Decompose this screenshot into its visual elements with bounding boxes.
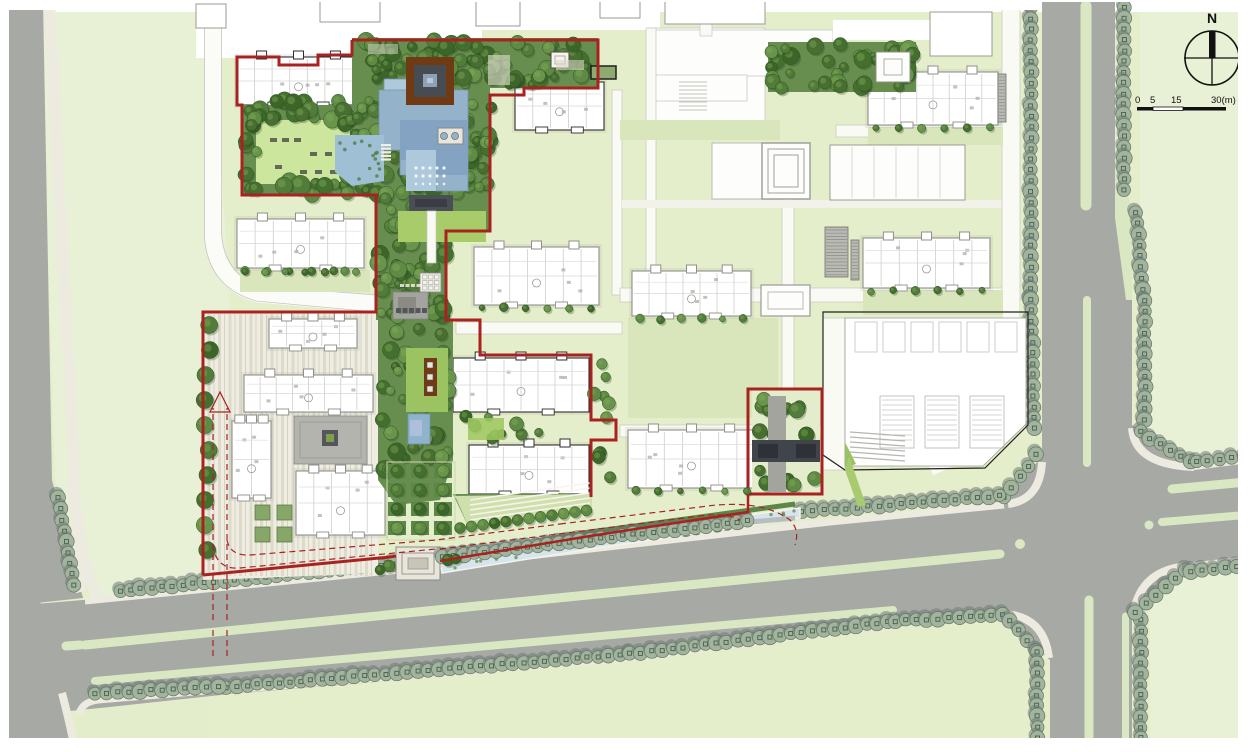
svg-text:5: 5	[1150, 95, 1155, 106]
svg-text:30(m): 30(m)	[1211, 95, 1236, 106]
svg-text:0: 0	[1135, 95, 1140, 106]
svg-text:N: N	[1207, 10, 1217, 26]
svg-text:15: 15	[1171, 95, 1182, 106]
